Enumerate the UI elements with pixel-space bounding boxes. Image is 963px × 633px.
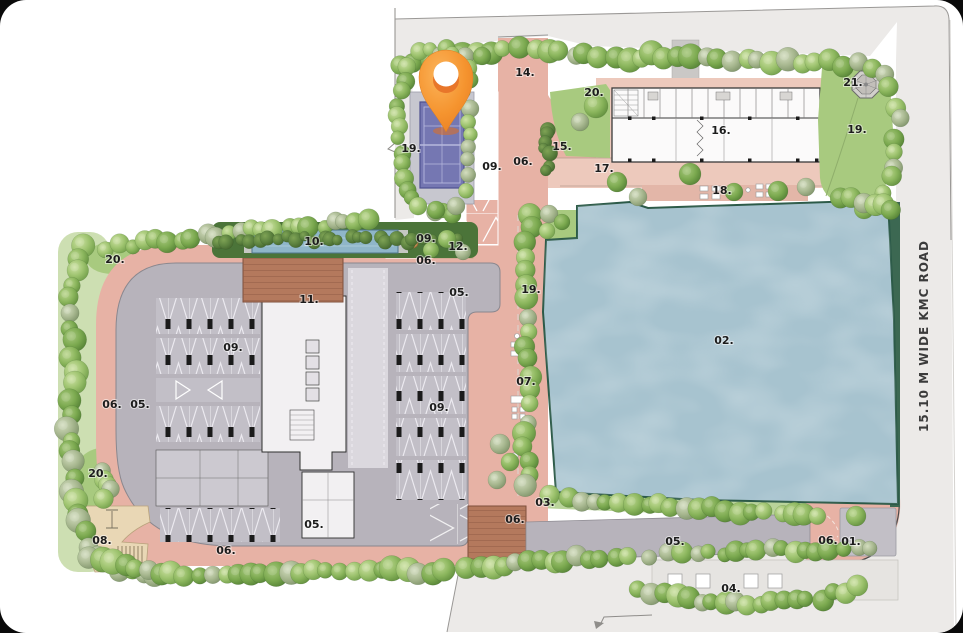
area-number-label: 09. bbox=[429, 401, 449, 414]
area-number-label: 19. bbox=[401, 142, 421, 155]
area-number-label: 15. bbox=[552, 140, 572, 153]
area-number-label: 03. bbox=[535, 496, 555, 509]
area-number-label: 05. bbox=[130, 398, 150, 411]
kmc-road-label: 15.10 M WIDE KMC ROAD bbox=[917, 240, 931, 432]
area-number-label: 11. bbox=[299, 293, 319, 306]
area-number-label: 14. bbox=[515, 66, 535, 79]
area-number-label: 06. bbox=[513, 155, 533, 168]
area-number-label: 19. bbox=[847, 123, 867, 136]
area-number-label: 06. bbox=[216, 544, 236, 557]
area-number-label: 05. bbox=[304, 518, 324, 531]
area-number-label: 08. bbox=[92, 534, 112, 547]
area-number-label: 10. bbox=[304, 235, 324, 248]
water-body-02-group bbox=[540, 196, 902, 508]
area-number-label: 06. bbox=[102, 398, 122, 411]
area-number-label: 17. bbox=[594, 162, 614, 175]
water-texture bbox=[540, 196, 902, 508]
area-number-label: 06. bbox=[416, 254, 436, 267]
area-number-label: 02. bbox=[714, 334, 734, 347]
area-number-label: 12. bbox=[448, 240, 468, 253]
site-plan: 01.02.03.04.05.05.05.05.06.06.06.06.06.0… bbox=[0, 0, 963, 633]
area-number-label: 20. bbox=[584, 86, 604, 99]
pin-hole bbox=[434, 62, 459, 87]
area-number-label: 05. bbox=[665, 535, 685, 548]
area-number-label: 19. bbox=[521, 283, 541, 296]
area-number-label: 09. bbox=[482, 160, 502, 173]
area-number-label: 06. bbox=[818, 534, 838, 547]
area-number-label: 18. bbox=[712, 184, 732, 197]
area-number-label: 04. bbox=[721, 582, 741, 595]
area-number-label: 09. bbox=[416, 232, 436, 245]
area-number-label: 05. bbox=[449, 286, 469, 299]
podium-service-rooms bbox=[156, 450, 268, 506]
area-number-label: 07. bbox=[516, 375, 536, 388]
area-number-label: 21. bbox=[843, 76, 863, 89]
podium-driveway bbox=[348, 268, 388, 468]
site-plan-canvas: 01.02.03.04.05.05.05.05.06.06.06.06.06.0… bbox=[0, 0, 963, 633]
area-number-label: 09. bbox=[223, 341, 243, 354]
area-number-label: 20. bbox=[88, 467, 108, 480]
area-number-label: 16. bbox=[711, 124, 731, 137]
area-number-label: 20. bbox=[105, 253, 125, 266]
area-number-label: 01. bbox=[841, 535, 861, 548]
area-number-label: 06. bbox=[505, 513, 525, 526]
